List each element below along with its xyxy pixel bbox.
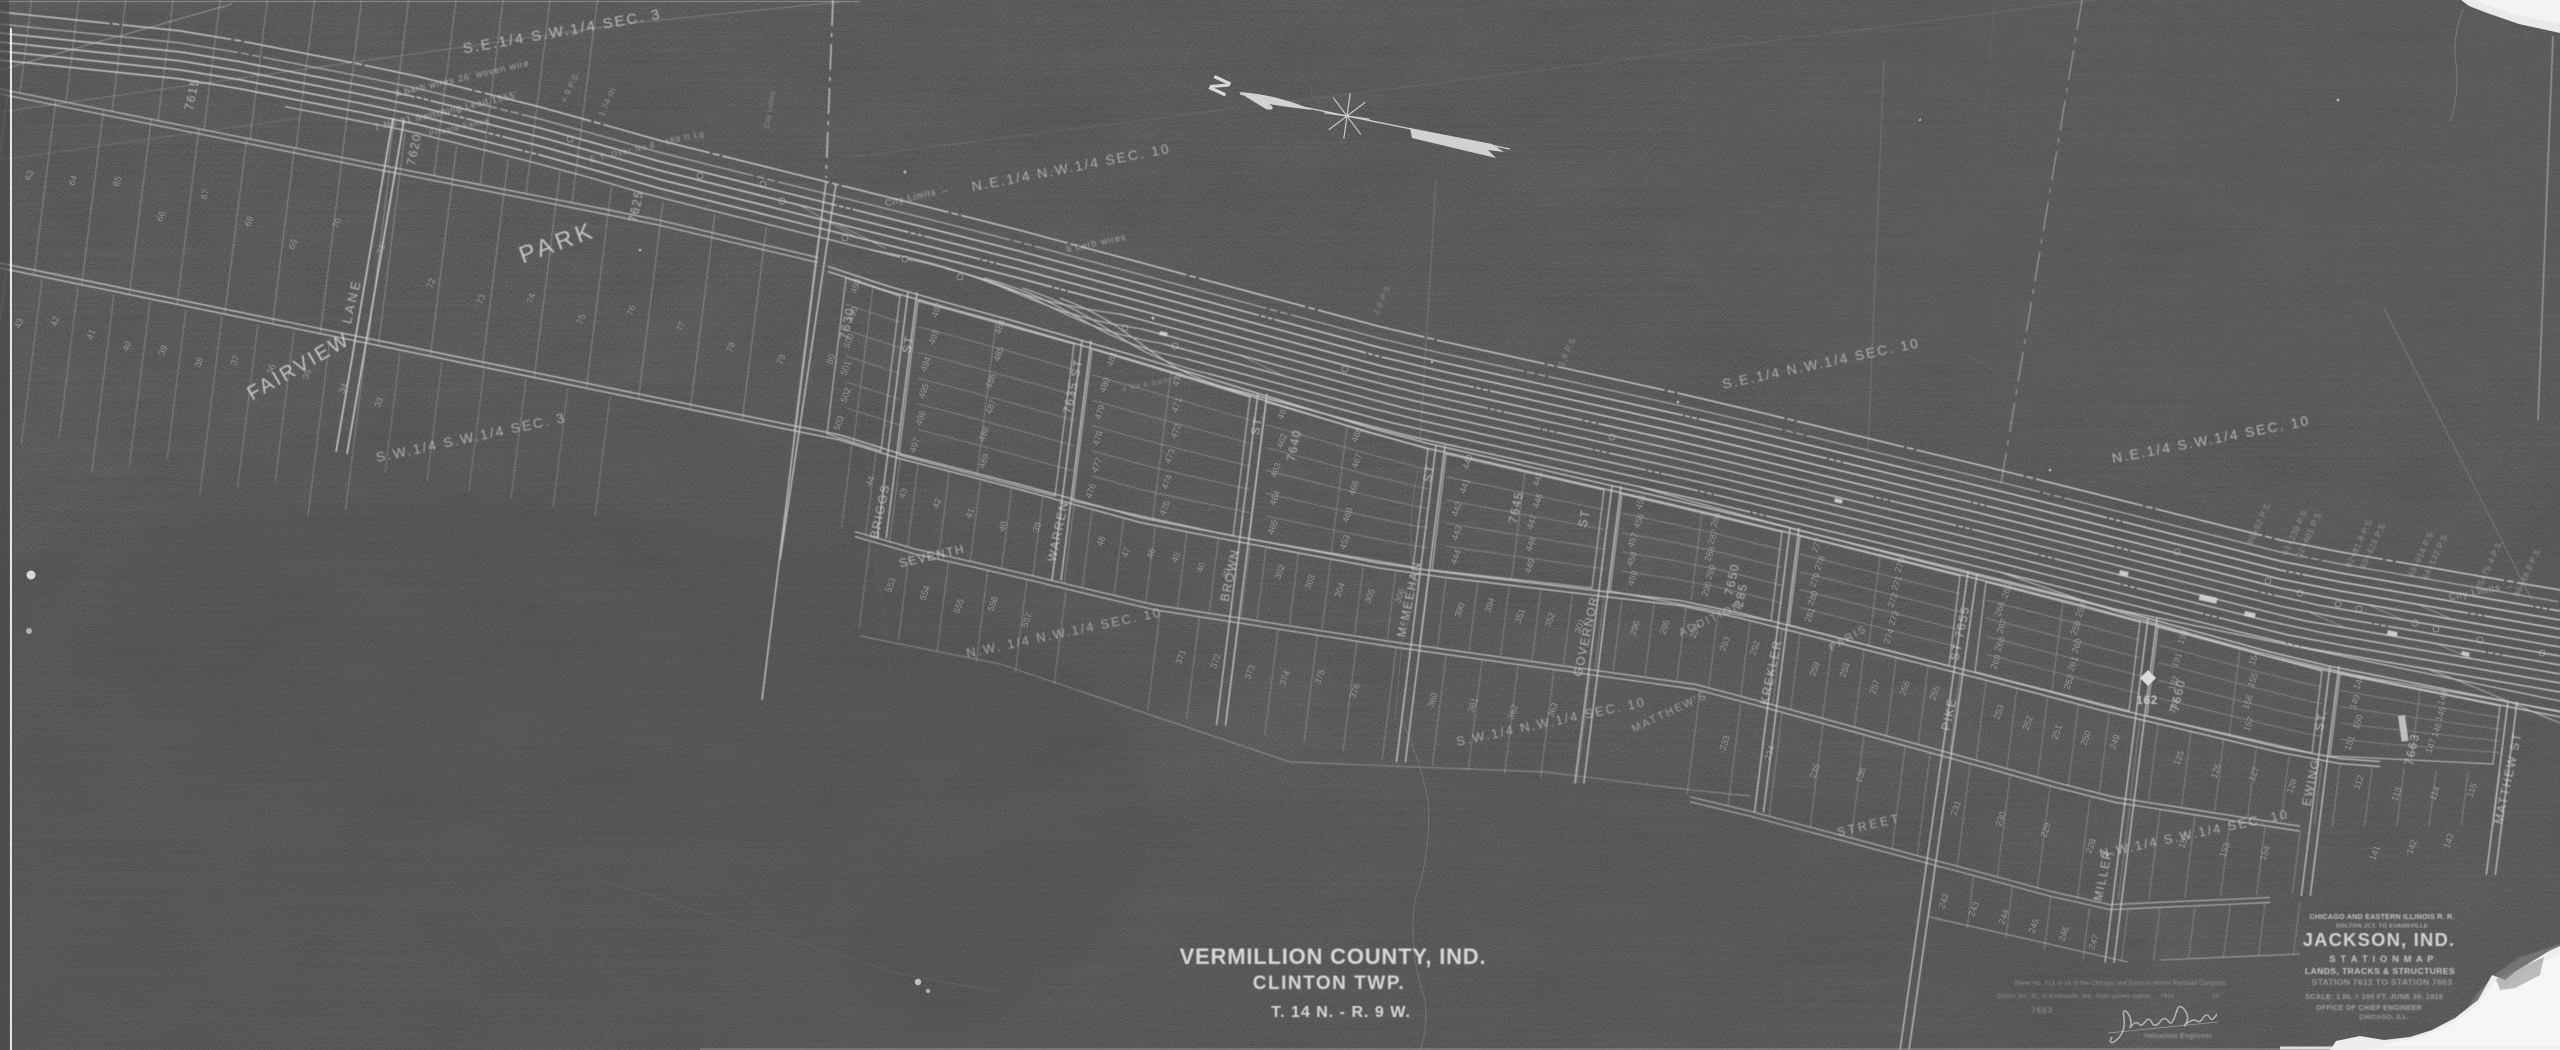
svg-text:Dolton Jct., Ill., to Evansvil: Dolton Jct., Ill., to Evansville, Ind., … <box>1997 994 2219 1000</box>
svg-text:Valuation Engineer: Valuation Engineer <box>2144 1033 2212 1040</box>
svg-text:162: 162 <box>2136 693 2158 707</box>
svg-text:VERMILLION COUNTY, IND.: VERMILLION COUNTY, IND. <box>1180 944 1487 969</box>
svg-text:LANDS, TRACKS & STRUCTURES: LANDS, TRACKS & STRUCTURES <box>2305 966 2455 976</box>
svg-text:STATION 7612 TO STATION: STATION 7612 TO STATION 7663 <box>2312 977 2453 987</box>
svg-text:CHICAGO AND EASTERN ILLINOIS R: CHICAGO AND EASTERN ILLINOIS R. R. <box>2309 912 2454 921</box>
svg-text:CHICAGO, ILL.: CHICAGO, ILL. <box>2359 1014 2409 1021</box>
svg-text:7663: 7663 <box>2031 1006 2053 1015</box>
svg-text:S T A T I O N M A P: S T A T I O N M A P <box>2329 954 2434 964</box>
svg-text:SCALE: 1 IN. = 100 FT.: SCALE: 1 IN. = 100 FT. JUNE 30, 1918 <box>2305 992 2443 1001</box>
svg-text:CLINTON TWP.: CLINTON TWP. <box>1253 973 1405 994</box>
svg-text:JACKSON, IND.: JACKSON, IND. <box>2303 929 2456 950</box>
svg-text:OFFICE OF CHIEF ENGINEER: OFFICE OF CHIEF ENGINEER <box>2316 1005 2422 1012</box>
svg-text:Sheet No. 213 of 15 of the Chi: Sheet No. 213 of 15 of the Chicago and E… <box>2014 981 2226 987</box>
svg-text:T. 14 N. - R. 9 W.: T. 14 N. - R. 9 W. <box>1271 1004 1411 1021</box>
